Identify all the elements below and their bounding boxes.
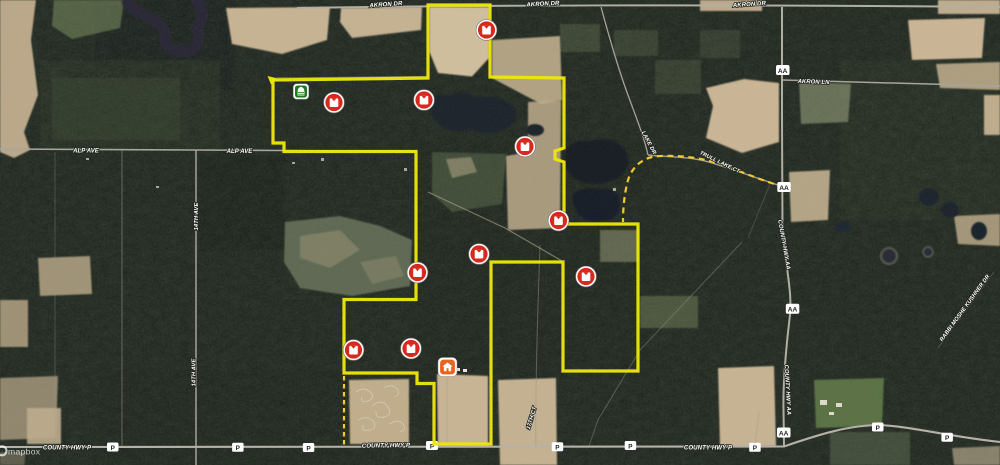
svg-text:ALP AVE: ALP AVE (226, 149, 254, 155)
svg-text:AA: AA (788, 307, 798, 314)
svg-text:P: P (236, 445, 241, 452)
svg-text:AA: AA (778, 68, 788, 75)
svg-text:AKRON LN: AKRON LN (796, 79, 830, 86)
svg-text:P: P (945, 435, 950, 442)
svg-text:14TH AVE: 14TH AVE (192, 358, 198, 387)
svg-text:14TH AVE: 14TH AVE (194, 202, 200, 231)
svg-text:P: P (876, 425, 881, 432)
svg-text:ALP AVE: ALP AVE (72, 149, 100, 155)
svg-text:mapbox: mapbox (8, 446, 41, 456)
svg-text:AA: AA (779, 185, 789, 192)
svg-text:COUNTY HWY P: COUNTY HWY P (362, 442, 411, 450)
svg-text:COUNTY HWY P: COUNTY HWY P (684, 445, 733, 452)
svg-text:P: P (555, 445, 560, 452)
svg-text:AA: AA (779, 430, 789, 437)
svg-text:P: P (753, 445, 758, 452)
svg-text:COUNTY HWY P: COUNTY HWY P (43, 444, 92, 451)
svg-text:P: P (111, 445, 116, 452)
svg-text:P: P (628, 443, 633, 450)
svg-text:P: P (306, 445, 311, 452)
